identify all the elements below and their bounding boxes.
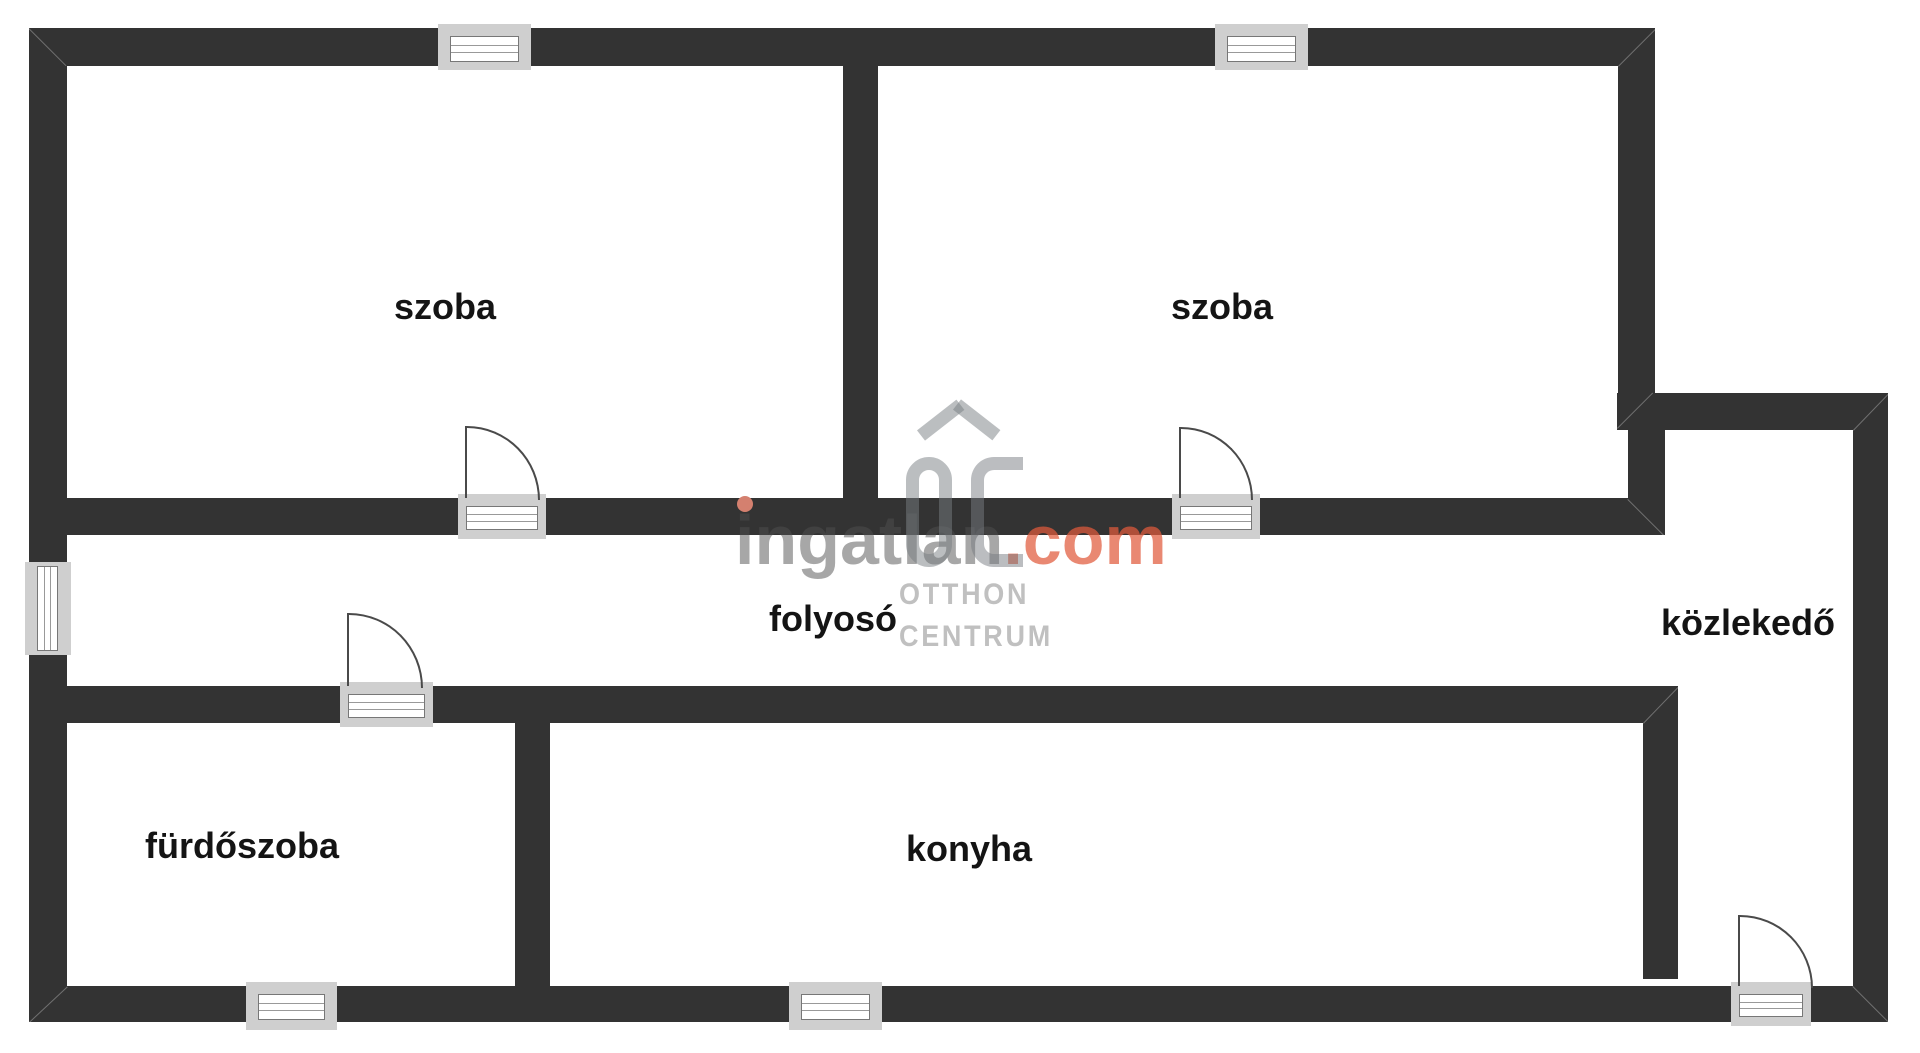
- wall-folyoso-north-right: [1260, 498, 1665, 535]
- watermark-brand-i-dot: [737, 496, 753, 512]
- watermark-brand-gray: ingatlan: [735, 501, 1003, 579]
- window-konyha: [789, 982, 882, 1030]
- door-threshold: [1180, 506, 1252, 530]
- wall-folyoso-north-left: [67, 498, 458, 535]
- window-frame: [450, 36, 519, 62]
- door-szoba-1-sill: [458, 494, 546, 539]
- window-frame: [801, 994, 870, 1020]
- watermark-brand-accent: .com: [1003, 501, 1166, 579]
- oc-monogram-letter-o: [906, 457, 952, 567]
- door-threshold: [348, 694, 425, 718]
- door-szoba-2-sill: [1172, 494, 1260, 539]
- door-furdoszoba-sill: [340, 682, 433, 727]
- door-szoba-2-swing-arc: [1181, 427, 1253, 500]
- window-folyoso-west: [25, 562, 71, 655]
- room-label-szoba-2: szoba: [1171, 286, 1273, 328]
- watermark-agency-line1: OTTHON: [899, 578, 1029, 612]
- door-threshold: [1739, 994, 1803, 1017]
- room-label-furdoszoba: fürdőszoba: [145, 825, 339, 867]
- wall-folyoso-kozlekedo-stub: [1628, 430, 1665, 498]
- wall-szoba2-east: [1618, 66, 1655, 393]
- floor-plan: szoba szoba folyosó közlekedő fürdőszoba…: [0, 0, 1920, 1053]
- window-szoba-1: [438, 24, 531, 70]
- wall-kozlekedo-north: [1617, 393, 1888, 430]
- window-frame: [258, 994, 325, 1020]
- door-kozlekedo-entrance-swing-arc: [1740, 915, 1813, 988]
- door-kozlekedo-entrance-sill: [1731, 982, 1811, 1026]
- window-furdoszoba: [246, 982, 337, 1030]
- room-label-konyha: konyha: [906, 828, 1032, 870]
- wall-konyha-north-right: [433, 686, 1678, 723]
- room-label-szoba-1: szoba: [394, 286, 496, 328]
- oc-monogram-letter-c: [971, 457, 1023, 567]
- door-furdoszoba-swing-arc: [349, 613, 423, 688]
- door-szoba-1-swing-arc: [467, 426, 540, 500]
- wall-konyha-east: [1643, 686, 1678, 979]
- wall-right: [1853, 393, 1888, 1022]
- room-label-folyoso: folyosó: [769, 598, 897, 640]
- wall-furdoszoba-konyha-divider: [515, 723, 550, 986]
- house-roof-right-stroke: [953, 399, 1000, 440]
- window-frame: [1227, 36, 1296, 62]
- window-szoba-2: [1215, 24, 1308, 70]
- window-frame: [37, 566, 58, 651]
- wall-szoba-divider: [843, 66, 878, 498]
- door-threshold: [466, 506, 538, 530]
- wall-top: [29, 28, 1655, 66]
- room-label-kozlekedo: közlekedő: [1661, 602, 1835, 644]
- watermark-agency-line2: CENTRUM: [899, 620, 1053, 654]
- house-roof-icon: [906, 395, 1026, 450]
- wall-konyha-north-left: [67, 686, 340, 723]
- wall-left: [29, 28, 67, 1022]
